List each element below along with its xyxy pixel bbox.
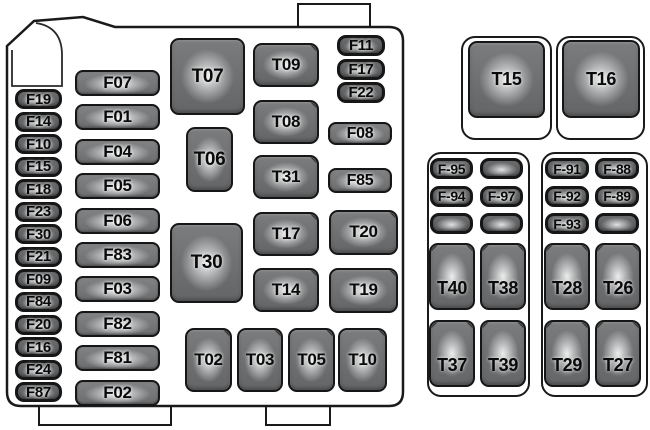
fuse-f30: F30 [15, 224, 62, 244]
fuse-blank [430, 213, 473, 234]
fuse-f16: F16 [15, 337, 62, 357]
relay-t39: T39 [480, 320, 526, 387]
fuse-f15: F15 [15, 157, 62, 177]
relay-t08: T08 [253, 100, 319, 144]
relay-t27: T27 [595, 320, 641, 387]
fuse-f01: F01 [75, 104, 160, 130]
relay-t19: T19 [329, 268, 398, 313]
fuse-f83: F83 [75, 242, 160, 268]
fuse-f21: F21 [15, 247, 62, 267]
relay-t26: T26 [595, 243, 641, 310]
relay-t31: T31 [253, 155, 319, 199]
relay-t16: T16 [562, 40, 640, 118]
mounting-tab-bottom-left [39, 406, 171, 425]
fuse-f-91: F-91 [545, 158, 589, 179]
relay-t05: T05 [288, 328, 335, 392]
fuse-f20: F20 [15, 315, 62, 335]
fuse-f14: F14 [15, 112, 62, 132]
relay-t07: T07 [170, 38, 245, 115]
fuse-f08: F08 [328, 122, 392, 145]
fuse-f85: F85 [328, 168, 392, 193]
fuse-f81: F81 [75, 345, 160, 371]
relay-t09: T09 [253, 43, 319, 87]
relay-t03: T03 [237, 328, 283, 392]
fuse-f19: F19 [15, 89, 62, 109]
relay-t10: T10 [338, 328, 387, 392]
relay-t20: T20 [329, 210, 398, 255]
fuse-f-97: F-97 [480, 186, 523, 207]
fuse-f09: F09 [15, 269, 62, 289]
relay-t37: T37 [429, 320, 475, 387]
fuse-f-95: F-95 [430, 158, 473, 179]
fuse-f84: F84 [15, 292, 62, 312]
fuse-f-88: F-88 [595, 158, 639, 179]
fuse-f-92: F-92 [545, 186, 589, 207]
relay-t29: T29 [544, 320, 590, 387]
fuse-f-89: F-89 [595, 186, 639, 207]
fuse-f24: F24 [15, 360, 62, 380]
relay-t38: T38 [480, 243, 526, 310]
relay-t15: T15 [468, 41, 545, 118]
fuse-f22: F22 [337, 82, 385, 103]
fuse-f87: F87 [15, 382, 62, 402]
fuse-f02: F02 [75, 380, 160, 406]
fuse-f23: F23 [15, 202, 62, 222]
relay-t06: T06 [186, 127, 233, 192]
fuse-f03: F03 [75, 276, 160, 302]
fuse-blank [480, 213, 523, 234]
fuse-box-diagram: const data = JSON.parse(document.getElem… [0, 0, 650, 430]
fuse-f06: F06 [75, 208, 160, 234]
fuse-f11: F11 [337, 35, 385, 56]
mounting-tab-bottom-right [266, 406, 330, 425]
relay-t14: T14 [253, 268, 319, 312]
mounting-tab-top [298, 4, 370, 28]
fuse-f10: F10 [15, 134, 62, 154]
fuse-blank [480, 158, 523, 179]
relay-t30: T30 [170, 223, 243, 303]
fuse-f04: F04 [75, 139, 160, 165]
relay-t02: T02 [185, 328, 232, 392]
fuse-f-94: F-94 [430, 186, 473, 207]
fuse-f82: F82 [75, 311, 160, 337]
relay-t40: T40 [429, 243, 475, 310]
fuse-f-93: F-93 [545, 213, 589, 234]
fuse-blank [595, 213, 639, 234]
relay-t28: T28 [544, 243, 590, 310]
fuse-f18: F18 [15, 179, 62, 199]
fuse-f07: F07 [75, 70, 160, 96]
fuse-f05: F05 [75, 173, 160, 199]
relay-t17: T17 [253, 212, 319, 256]
fuse-f17: F17 [337, 59, 385, 80]
